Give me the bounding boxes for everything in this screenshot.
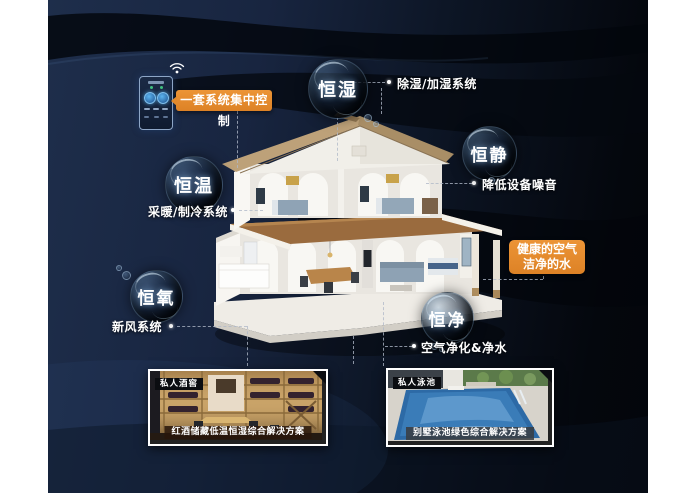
annotation-noise-reduction: 降低设备噪音 (482, 176, 557, 193)
connector-line (177, 326, 247, 327)
connector-dot (472, 181, 476, 185)
connector-line (381, 88, 382, 114)
mini-bubble (122, 271, 131, 280)
pool-tag: 私人泳池 (393, 377, 441, 389)
wine-cellar-tag: 私人酒窖 (155, 378, 203, 390)
badge-pointer (171, 96, 177, 106)
bubble-constant-oxygen: 恒氧 (130, 270, 183, 323)
bubble-label: 恒静 (471, 141, 509, 166)
connector-line (383, 302, 384, 366)
healthy-line2: 洁净的水 (509, 257, 585, 272)
healthy-badge: 健康的空气 洁净的水 (509, 240, 585, 274)
connector-line (239, 210, 263, 211)
wine-cellar-photo: 私人酒窖 红酒储藏低温恒湿综合解决方案 (148, 369, 328, 446)
bubble-constant-quiet: 恒静 (462, 126, 517, 181)
panel-menu-row (140, 116, 172, 118)
annotation-hvac-system: 采暖/制冷系统 (148, 203, 228, 220)
annotation-purification: 空气净化&净水 (421, 339, 507, 356)
central-control-badge: 一套系统集中控制 (176, 90, 272, 111)
connector-line (237, 111, 238, 168)
pool-caption: 别墅泳池绿色综合解决方案 (406, 427, 534, 440)
bubble-label: 恒净 (429, 306, 467, 331)
mini-bubble (373, 121, 379, 127)
panel-knob-right (157, 92, 169, 104)
annotation-fresh-air-system: 新风系统 (112, 318, 162, 335)
wifi-icon (169, 61, 185, 74)
panel-status-lights (140, 86, 172, 89)
bubble-label: 恒氧 (138, 284, 176, 309)
mini-bubble (116, 265, 122, 271)
bubble-label: 恒温 (174, 172, 214, 198)
connector-line (337, 117, 338, 161)
connector-line (353, 336, 354, 364)
mini-bubble (364, 114, 372, 122)
connector-dot (169, 324, 173, 328)
bubble-constant-clean: 恒净 (421, 292, 474, 345)
connector-dot (387, 80, 391, 84)
poster: 一套系统集中控制 健康的空气 洁净的水 恒湿 恒静 恒温 恒氧 恒净 (0, 0, 700, 497)
photo-corner-mark (539, 370, 552, 383)
bubble-label: 恒湿 (318, 76, 358, 102)
connector-line (385, 346, 412, 347)
pool-photo: 私人泳池 别墅泳池绿色综合解决方案 (386, 368, 554, 447)
panel-title-bar (148, 81, 164, 84)
healthy-line1: 健康的空气 (509, 242, 585, 257)
smart-control-panel (139, 76, 173, 130)
photo-corner-mark (313, 371, 326, 384)
panel-labels (140, 108, 172, 110)
bubble-constant-humidity: 恒湿 (308, 59, 368, 119)
connector-dot (412, 344, 416, 348)
connector-line (426, 183, 472, 184)
wine-cellar-caption: 红酒储藏低温恒湿综合解决方案 (164, 426, 311, 439)
connector-line (247, 326, 248, 366)
panel-knob-left (144, 92, 156, 104)
connector-line (483, 279, 543, 280)
connector-dot (231, 208, 235, 212)
poster-canvas: 一套系统集中控制 健康的空气 洁净的水 恒湿 恒静 恒温 恒氧 恒净 (48, 0, 648, 493)
annotation-humidity-system: 除湿/加湿系统 (397, 75, 477, 92)
